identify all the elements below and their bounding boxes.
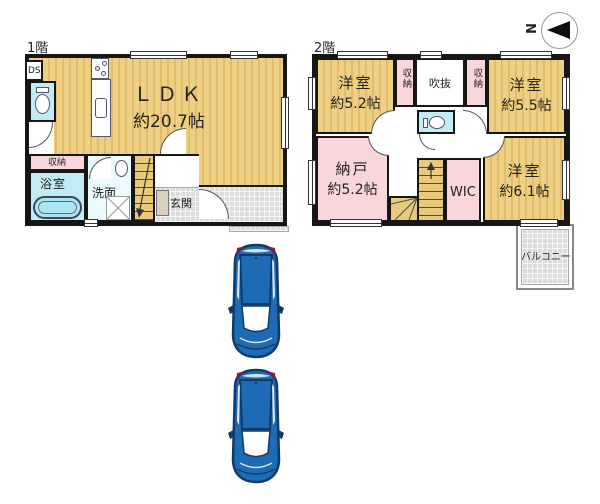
window	[308, 160, 316, 205]
bedroom-ne-door-arc	[463, 110, 487, 134]
car-icon	[226, 242, 286, 360]
balcony: バルコニー	[516, 224, 574, 290]
stairs-up-arrow-icon	[423, 161, 447, 181]
bath-label: 浴室	[40, 177, 66, 191]
toilet-bowl-icon	[429, 116, 445, 129]
stove-icon	[91, 58, 109, 79]
stairs-2f	[417, 158, 445, 222]
washroom: 洗面	[86, 154, 133, 222]
floor2-plan: 洋室 約5.2帖 収納 吹抜 収納 洋室 約5.5帖	[312, 54, 570, 226]
void-room: 吹抜	[415, 58, 465, 107]
toilet-room-2f	[417, 110, 455, 134]
sink-icon	[115, 160, 128, 177]
porch-step	[229, 226, 289, 232]
ldk-room-label: ＬＤＫ 約20.7帖	[104, 82, 234, 132]
bedroom-se-label: 洋室 約6.1帖	[485, 162, 564, 201]
bathtub-icon	[33, 196, 82, 219]
closet-left: 収納	[395, 58, 415, 107]
void-label: 吹抜	[429, 77, 451, 90]
window	[562, 160, 570, 200]
window	[308, 77, 316, 110]
shoe-cabinet	[156, 190, 169, 216]
window	[337, 51, 388, 59]
entrance-hall: 玄関	[155, 187, 199, 222]
bedroom-ne: 洋室 約5.5帖	[487, 58, 566, 134]
toilet-tank-icon	[423, 118, 428, 128]
hall-1f	[155, 154, 199, 187]
winder-lines-icon	[391, 198, 417, 220]
bedroom-ne-label: 洋室 約5.5帖	[489, 76, 564, 115]
washer-pan-icon	[106, 196, 130, 220]
window	[281, 97, 289, 149]
window	[84, 219, 98, 227]
balcony-door-opening	[520, 219, 558, 227]
toilet-room-1f	[29, 81, 56, 122]
window	[500, 51, 552, 59]
car-icon	[226, 367, 286, 485]
window	[230, 51, 258, 59]
ds-label: DS	[28, 66, 41, 77]
toilet-2f-door-arc	[419, 134, 435, 150]
floor1-plan: DS ＬＤＫ 約20.7帖 収納 浴室	[25, 54, 287, 226]
window	[330, 219, 382, 227]
closet-right: 収納	[465, 58, 487, 107]
storage-1f: 収納	[29, 154, 86, 171]
bath-room: 浴室	[29, 171, 86, 222]
window	[562, 77, 570, 110]
window	[130, 51, 187, 59]
stairs-1f	[133, 154, 155, 222]
bedroom-nw-label: 洋室 約5.2帖	[318, 74, 393, 113]
stairs-winder	[389, 196, 419, 222]
compass-icon	[541, 12, 578, 49]
wic-room: WIC	[445, 158, 481, 222]
ds-box: DS	[25, 60, 43, 81]
window	[420, 51, 442, 59]
toilet-bowl-icon	[35, 94, 50, 114]
toilet-tank-icon	[36, 87, 49, 93]
entrance-label: 玄関	[170, 197, 192, 210]
washroom-door-arc	[89, 157, 111, 179]
stairs-arrow-icon	[135, 156, 153, 220]
ldk-name: ＬＤＫ	[104, 82, 234, 106]
balcony-label: バルコニー	[521, 252, 571, 264]
closet-left-label: 収納	[400, 68, 411, 89]
north-label: N	[522, 23, 537, 34]
storage-1f-label: 収納	[48, 158, 66, 169]
ldk-size: 約20.7帖	[104, 112, 234, 132]
wic-label: WIC	[450, 185, 476, 201]
closet-right-label: 収納	[471, 68, 482, 89]
floorplan-canvas: 1階 2階 DS ＬＤＫ 約20.7帖	[0, 0, 600, 504]
storage-room-label: 納戸 約5.2帖	[318, 160, 387, 199]
